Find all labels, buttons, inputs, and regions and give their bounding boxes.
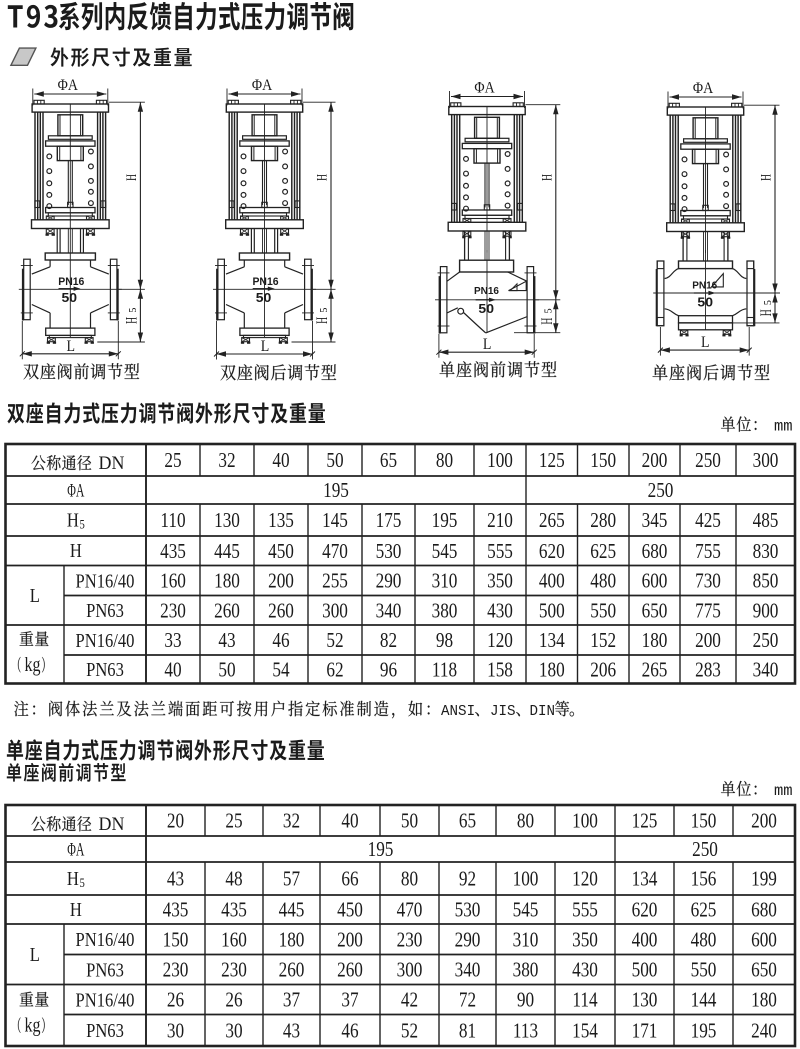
svg-text:135: 135	[268, 510, 294, 533]
svg-text:PN16/40: PN16/40	[76, 989, 135, 1011]
svg-text:L: L	[483, 337, 492, 354]
svg-text:300: 300	[322, 600, 348, 623]
svg-text:40: 40	[164, 659, 181, 682]
svg-text:145: 145	[322, 510, 348, 533]
svg-text:380: 380	[513, 959, 539, 982]
svg-text:118: 118	[432, 659, 457, 682]
svg-text:kg: kg	[25, 1014, 41, 1036]
svg-text:92: 92	[459, 868, 476, 891]
svg-text:200: 200	[337, 929, 363, 952]
svg-text:ΦA: ΦA	[67, 840, 85, 860]
svg-text:620: 620	[539, 541, 565, 564]
svg-text:PN63: PN63	[86, 659, 124, 681]
svg-text:470: 470	[322, 541, 348, 564]
svg-text:L: L	[30, 944, 40, 966]
svg-text:600: 600	[751, 929, 777, 952]
svg-text:33: 33	[164, 630, 181, 653]
svg-text:80: 80	[517, 810, 534, 833]
svg-text:81: 81	[459, 1020, 476, 1043]
svg-text:195: 195	[368, 839, 394, 862]
svg-text:H: H	[123, 174, 140, 181]
svg-text:57: 57	[283, 868, 301, 891]
svg-text:50: 50	[62, 291, 78, 305]
svg-text:PN63: PN63	[86, 1020, 124, 1042]
svg-text:199: 199	[751, 868, 777, 891]
svg-text:32: 32	[283, 810, 300, 833]
svg-text:H: H	[67, 509, 79, 531]
svg-text:755: 755	[695, 541, 721, 564]
svg-text:260: 260	[337, 959, 363, 982]
svg-text:L: L	[261, 338, 270, 355]
svg-text:195: 195	[691, 1020, 717, 1043]
svg-text:830: 830	[753, 541, 779, 564]
svg-text:50: 50	[478, 302, 494, 316]
svg-text:625: 625	[691, 899, 717, 922]
svg-text:40: 40	[272, 450, 289, 473]
svg-text:25: 25	[164, 450, 181, 473]
svg-text:PN16: PN16	[58, 276, 84, 288]
svg-text:50: 50	[256, 291, 272, 305]
svg-text:380: 380	[432, 600, 458, 623]
svg-text:L: L	[701, 334, 710, 351]
svg-text:210: 210	[487, 510, 513, 533]
svg-text:400: 400	[539, 570, 565, 593]
svg-text:ΦA: ΦA	[252, 77, 273, 94]
svg-text:5: 5	[80, 876, 85, 890]
svg-text:435: 435	[221, 899, 247, 922]
svg-text:ΦA: ΦA	[58, 77, 79, 94]
svg-text:255: 255	[322, 570, 348, 593]
svg-text:66: 66	[341, 868, 359, 891]
svg-text:480: 480	[691, 929, 717, 952]
svg-text:230: 230	[221, 959, 247, 982]
svg-text:195: 195	[432, 510, 458, 533]
svg-text:310: 310	[432, 570, 458, 593]
svg-text:620: 620	[632, 899, 658, 922]
svg-text:265: 265	[642, 659, 668, 682]
svg-text:125: 125	[539, 450, 565, 473]
svg-text:100: 100	[513, 868, 539, 891]
svg-text:730: 730	[695, 570, 721, 593]
svg-text:80: 80	[436, 450, 453, 473]
svg-text:550: 550	[691, 959, 717, 982]
svg-text:500: 500	[632, 959, 658, 982]
svg-text:650: 650	[642, 600, 668, 623]
svg-text:H: H	[123, 317, 140, 324]
svg-text:46: 46	[272, 630, 290, 653]
svg-text:5: 5	[762, 300, 774, 305]
svg-text:H: H	[313, 174, 330, 181]
svg-text:435: 435	[163, 899, 189, 922]
svg-text:JIS: JIS	[490, 704, 516, 720]
svg-text:DIN: DIN	[530, 704, 556, 720]
svg-text:775: 775	[695, 600, 721, 623]
svg-text:H: H	[758, 309, 775, 316]
svg-text:450: 450	[337, 899, 363, 922]
svg-text:5: 5	[318, 308, 330, 313]
svg-text:200: 200	[751, 810, 777, 833]
svg-text:290: 290	[455, 929, 481, 952]
svg-text:H: H	[70, 899, 82, 921]
svg-text:445: 445	[279, 899, 305, 922]
svg-text:100: 100	[572, 810, 598, 833]
svg-text:680: 680	[751, 899, 777, 922]
svg-text:400: 400	[632, 929, 658, 952]
svg-text:430: 430	[572, 959, 598, 982]
svg-text:L: L	[30, 585, 40, 607]
svg-text:350: 350	[572, 929, 598, 952]
svg-text:54: 54	[272, 659, 290, 682]
svg-text:230: 230	[160, 600, 186, 623]
svg-text:37: 37	[283, 989, 301, 1012]
svg-text:ANSI: ANSI	[441, 704, 475, 720]
svg-text:180: 180	[214, 570, 240, 593]
svg-text:450: 450	[268, 541, 294, 564]
svg-text:kg: kg	[25, 654, 41, 676]
svg-text:20: 20	[167, 810, 184, 833]
svg-text:500: 500	[539, 600, 565, 623]
svg-text:480: 480	[590, 570, 616, 593]
svg-text:200: 200	[268, 570, 294, 593]
svg-text:340: 340	[376, 600, 402, 623]
svg-text:26: 26	[225, 989, 243, 1012]
svg-text:485: 485	[753, 510, 779, 533]
svg-text:30: 30	[167, 1020, 184, 1043]
svg-text:82: 82	[380, 630, 397, 653]
svg-text:H: H	[67, 868, 79, 890]
svg-text:130: 130	[214, 510, 240, 533]
svg-text:mm: mm	[774, 782, 793, 800]
svg-text:435: 435	[160, 541, 186, 564]
svg-text:90: 90	[517, 989, 534, 1012]
svg-text:154: 154	[572, 1020, 598, 1043]
svg-text:625: 625	[590, 541, 616, 564]
svg-text:180: 180	[751, 989, 777, 1012]
svg-text:H: H	[757, 174, 774, 181]
svg-text:37: 37	[341, 989, 359, 1012]
svg-text:650: 650	[751, 959, 777, 982]
svg-text:430: 430	[487, 600, 513, 623]
svg-text:PN16: PN16	[692, 280, 717, 291]
svg-text:5: 5	[80, 518, 85, 532]
svg-text:180: 180	[279, 929, 305, 952]
svg-text:50: 50	[326, 450, 343, 473]
svg-text:470: 470	[397, 899, 423, 922]
svg-text:425: 425	[695, 510, 721, 533]
svg-text:72: 72	[459, 989, 476, 1012]
svg-text:280: 280	[590, 510, 616, 533]
svg-text:340: 340	[455, 959, 481, 982]
svg-text:250: 250	[648, 480, 674, 503]
svg-text:52: 52	[326, 630, 343, 653]
svg-text:265: 265	[539, 510, 565, 533]
svg-text:555: 555	[487, 541, 513, 564]
svg-text:50: 50	[401, 810, 418, 833]
svg-text:PN16: PN16	[474, 286, 499, 297]
svg-text:DN: DN	[99, 813, 125, 835]
svg-text:98: 98	[436, 630, 453, 653]
svg-text:180: 180	[539, 659, 565, 682]
svg-text:43: 43	[218, 630, 235, 653]
svg-text:555: 555	[572, 899, 598, 922]
svg-text:PN63: PN63	[86, 959, 124, 981]
svg-text:125: 125	[632, 810, 658, 833]
svg-text:200: 200	[695, 630, 721, 653]
svg-text:52: 52	[401, 1020, 418, 1043]
svg-text:180: 180	[642, 630, 668, 653]
svg-text:134: 134	[539, 630, 565, 653]
svg-text:mm: mm	[774, 418, 793, 436]
svg-text:130: 130	[632, 989, 658, 1012]
svg-text:5: 5	[543, 308, 555, 313]
svg-text:545: 545	[432, 541, 458, 564]
svg-text:340: 340	[753, 659, 779, 682]
svg-text:250: 250	[695, 450, 721, 473]
svg-text:30: 30	[225, 1020, 242, 1043]
svg-text:40: 40	[341, 810, 358, 833]
svg-text:42: 42	[401, 989, 418, 1012]
svg-text:195: 195	[323, 480, 349, 503]
svg-text:158: 158	[487, 659, 513, 682]
svg-text:26: 26	[167, 989, 185, 1012]
svg-text:550: 550	[590, 600, 616, 623]
svg-text:171: 171	[632, 1020, 658, 1043]
svg-text:5: 5	[128, 308, 140, 313]
svg-text:96: 96	[380, 659, 398, 682]
svg-text:530: 530	[455, 899, 481, 922]
svg-text:600: 600	[642, 570, 668, 593]
svg-text:120: 120	[487, 630, 513, 653]
svg-text:152: 152	[590, 630, 616, 653]
svg-text:65: 65	[380, 450, 397, 473]
svg-text:160: 160	[160, 570, 186, 593]
svg-text:PN16/40: PN16/40	[76, 929, 135, 951]
svg-text:H: H	[538, 174, 555, 181]
svg-text:120: 120	[572, 868, 598, 891]
svg-text:230: 230	[163, 959, 189, 982]
svg-text:156: 156	[691, 868, 717, 891]
svg-text:PN16/40: PN16/40	[76, 570, 135, 592]
svg-text:150: 150	[163, 929, 189, 952]
svg-text:250: 250	[753, 630, 779, 653]
svg-text:150: 150	[691, 810, 717, 833]
svg-text:445: 445	[214, 541, 240, 564]
svg-text:65: 65	[459, 810, 476, 833]
svg-text:ΦA: ΦA	[693, 80, 714, 97]
svg-text:230: 230	[397, 929, 423, 952]
svg-text:PN16/40: PN16/40	[76, 630, 135, 652]
svg-text:345: 345	[642, 510, 668, 533]
svg-text:50: 50	[697, 295, 713, 309]
svg-text:144: 144	[691, 989, 717, 1012]
svg-text:900: 900	[753, 600, 779, 623]
svg-text:240: 240	[751, 1020, 777, 1043]
svg-text:80: 80	[401, 868, 418, 891]
svg-text:ΦA: ΦA	[67, 481, 85, 501]
svg-text:43: 43	[167, 868, 184, 891]
svg-text:290: 290	[376, 570, 402, 593]
svg-text:350: 350	[487, 570, 513, 593]
svg-text:32: 32	[218, 450, 235, 473]
svg-text:62: 62	[326, 659, 343, 682]
svg-text:300: 300	[397, 959, 423, 982]
svg-text:530: 530	[376, 541, 402, 564]
svg-text:H: H	[314, 317, 331, 324]
svg-text:850: 850	[753, 570, 779, 593]
svg-text:260: 260	[268, 600, 294, 623]
svg-text:310: 310	[513, 929, 539, 952]
svg-text:DN: DN	[99, 452, 125, 474]
svg-text:250: 250	[692, 839, 718, 862]
svg-text:H: H	[70, 540, 82, 562]
svg-text:PN63: PN63	[86, 600, 124, 622]
svg-text:200: 200	[642, 450, 668, 473]
svg-text:114: 114	[572, 989, 598, 1012]
svg-text:206: 206	[590, 659, 616, 682]
svg-text:160: 160	[221, 929, 247, 952]
svg-text:L: L	[67, 338, 76, 355]
svg-text:25: 25	[225, 810, 242, 833]
svg-text:48: 48	[225, 868, 242, 891]
svg-text:175: 175	[376, 510, 402, 533]
svg-text:100: 100	[487, 450, 513, 473]
svg-text:PN16: PN16	[252, 276, 278, 288]
svg-text:113: 113	[513, 1020, 538, 1043]
svg-text:283: 283	[695, 659, 721, 682]
svg-text:300: 300	[753, 450, 779, 473]
svg-text:545: 545	[513, 899, 539, 922]
svg-text:134: 134	[632, 868, 658, 891]
svg-text:50: 50	[218, 659, 235, 682]
svg-text:260: 260	[279, 959, 305, 982]
svg-text:680: 680	[642, 541, 668, 564]
svg-text:150: 150	[590, 450, 616, 473]
svg-text:43: 43	[283, 1020, 300, 1043]
svg-text:H: H	[539, 318, 556, 325]
svg-text:ΦA: ΦA	[474, 80, 495, 97]
svg-text:260: 260	[214, 600, 240, 623]
svg-text:46: 46	[341, 1020, 359, 1043]
svg-text:110: 110	[160, 510, 185, 533]
